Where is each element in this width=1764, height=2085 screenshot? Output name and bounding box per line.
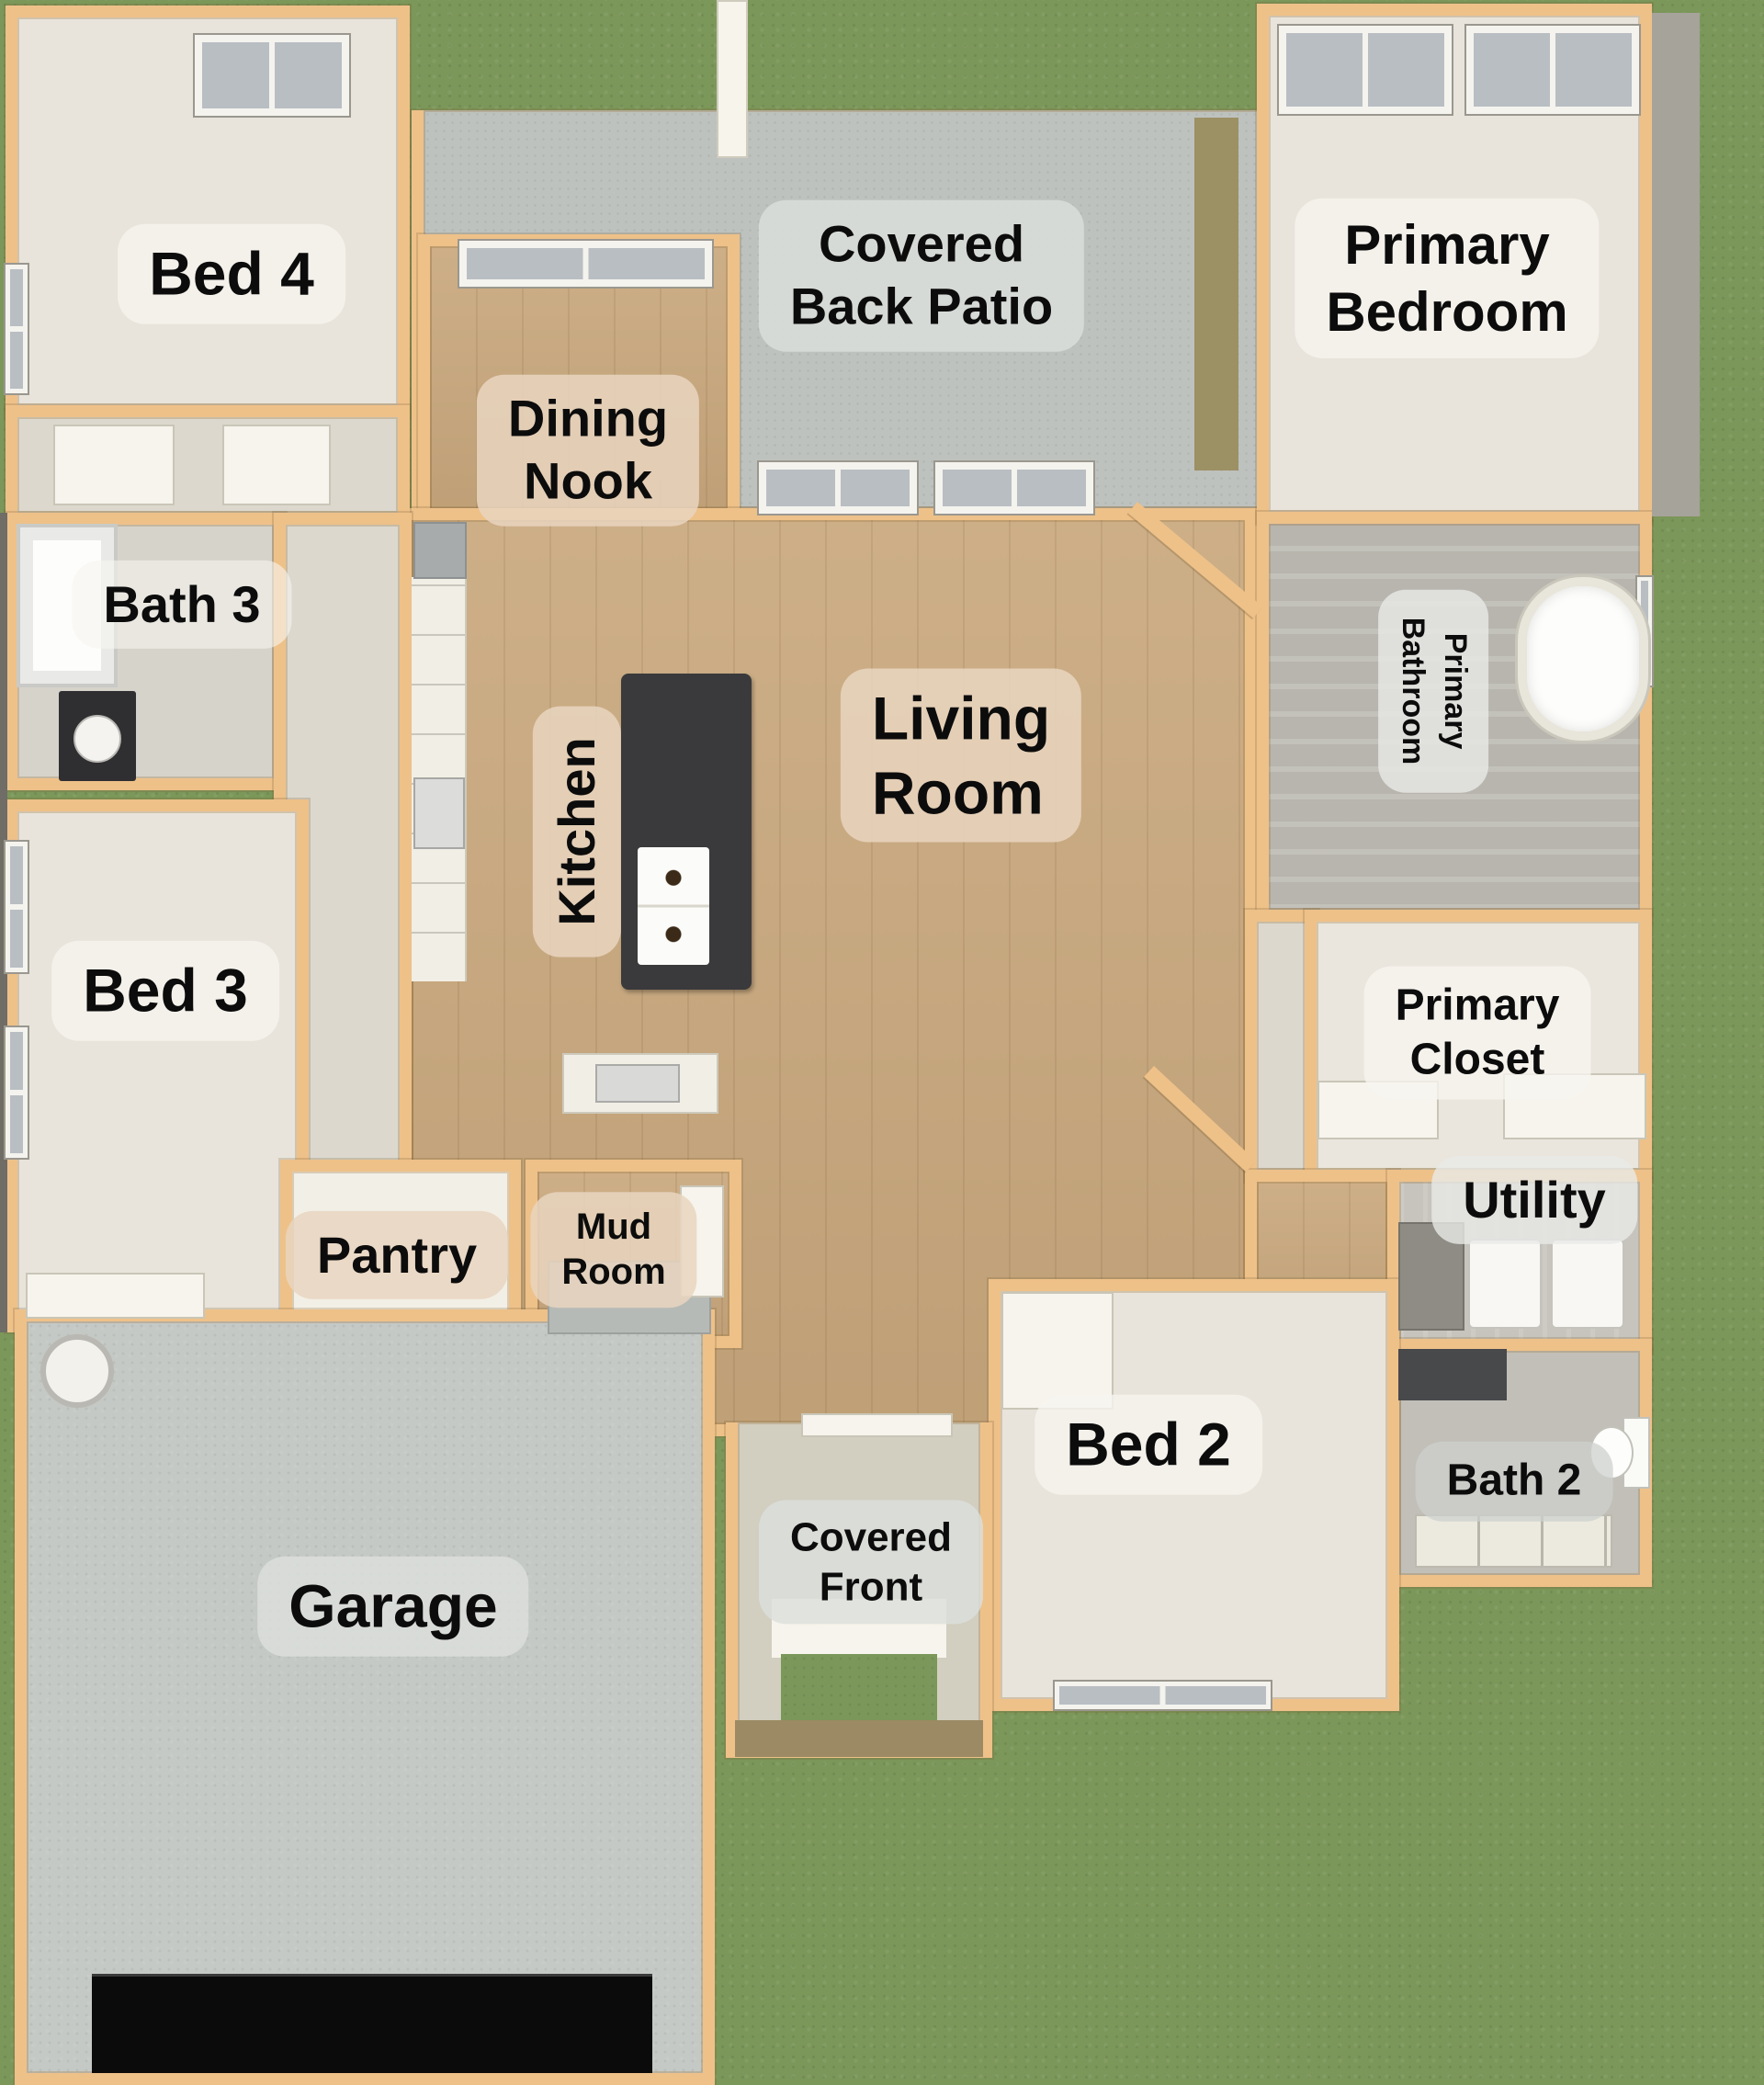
bed2-window	[1055, 1682, 1271, 1709]
bed4-side-window	[6, 265, 28, 393]
fridge	[413, 522, 467, 579]
room-bed3	[6, 799, 309, 1332]
primary-bedroom-window	[1466, 26, 1639, 114]
label-covered-front: Covered Front	[759, 1500, 983, 1624]
bath2-shower-glass	[1398, 1349, 1507, 1400]
label-pantry: Pantry	[286, 1211, 508, 1299]
dining-window	[459, 241, 712, 287]
label-bed2: Bed 2	[1035, 1395, 1262, 1495]
garage-door	[92, 1974, 652, 2073]
label-primary-closet: Primary Closet	[1364, 966, 1591, 1099]
label-kitchen: Kitchen	[533, 706, 621, 957]
exterior-wall-shadow	[1652, 13, 1700, 516]
bed3-window	[6, 1027, 28, 1158]
living-window	[935, 462, 1093, 514]
bath3-sink	[73, 715, 121, 763]
washer	[1468, 1239, 1542, 1329]
label-covered-back-patio: Covered Back Patio	[759, 200, 1084, 352]
bed3-window-seat	[26, 1273, 205, 1319]
label-bath3: Bath 3	[72, 561, 291, 649]
water-heater	[40, 1334, 114, 1408]
bed2-closet	[1001, 1292, 1114, 1410]
front-door	[801, 1413, 953, 1437]
closet-door	[53, 425, 175, 505]
dryer	[1551, 1239, 1624, 1329]
closet-door	[222, 425, 331, 505]
label-primary-bedroom: Primary Bedroom	[1295, 198, 1599, 358]
label-primary-bathroom: Primary Bathroom	[1378, 590, 1488, 793]
room-garage	[15, 1309, 715, 2085]
label-bed3: Bed 3	[51, 941, 279, 1041]
front-porch-edge	[735, 1720, 983, 1757]
bed4-window	[195, 35, 349, 116]
label-living-room: Living Room	[841, 668, 1081, 842]
label-bath2: Bath 2	[1416, 1442, 1613, 1522]
bathtub	[1518, 577, 1648, 741]
chimney-column	[717, 0, 748, 158]
label-utility: Utility	[1431, 1156, 1637, 1244]
patio-side-wall	[1194, 118, 1238, 470]
bed3-window	[6, 842, 28, 972]
primary-bedroom-window	[1279, 26, 1452, 114]
kitchen-sink	[595, 1064, 680, 1103]
label-mud-room: Mud Room	[530, 1192, 696, 1308]
bath2-vanity	[1415, 1514, 1612, 1568]
range-stove	[413, 777, 465, 849]
label-garage: Garage	[257, 1557, 528, 1657]
floor-plan: Bed 4 Covered Back Patio Primary Bedroom…	[0, 0, 1764, 2085]
label-bed4: Bed 4	[118, 224, 345, 324]
cooktop	[638, 847, 709, 965]
living-window	[759, 462, 917, 514]
label-dining-nook: Dining Nook	[477, 375, 699, 527]
